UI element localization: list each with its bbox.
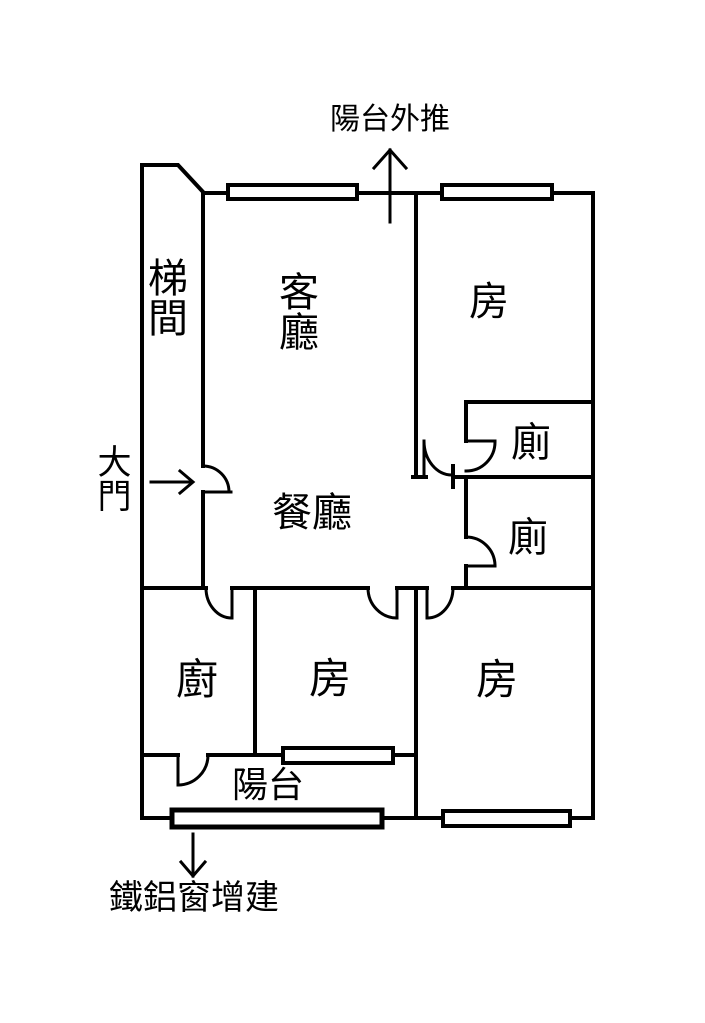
main-entrance-door [203,466,231,492]
room-label-living: 客廳 [276,273,322,353]
balcony-pushout-arrow [374,150,406,222]
room-label-dining: 餐廳 [272,493,352,533]
window-balcony-iron [172,810,382,827]
bedroom-right-door [427,588,453,618]
window-living-top [228,185,357,199]
window-addition-arrow [181,834,205,876]
bedroom-mid-door [368,588,397,618]
balcony-pushout-label: 陽台外推 [330,105,450,135]
kitchen-door [206,588,232,618]
balcony-door [178,755,208,785]
bedroom-top-door-arc [424,441,452,475]
kitchen-door-arc [206,588,232,618]
window-bedroom-mid [283,748,393,763]
window-bedroom-right [443,811,570,826]
toilet-upper-door-arc [466,442,495,471]
entrance-label: 大門 [94,444,128,512]
balcony-door-arc [178,755,208,785]
room-label-kitchen: 廚 [176,659,218,701]
room-label-stairwell: 梯間 [144,257,184,337]
main-entrance-door-arc [203,466,229,492]
bedroom-mid-door-arc [368,588,397,618]
bedroom-right-door-arc [427,588,453,618]
window-bedroom-top [442,185,552,199]
toilet-lower-door [466,537,495,566]
bedroom-top-door [424,441,452,477]
windows-group [172,185,570,827]
room-label-bedroom-mid: 房 [309,658,351,700]
room-label-toilet-lower: 廁 [508,518,548,558]
room-label-bedroom-right: 房 [476,659,518,701]
entrance-arrow [151,471,193,493]
toilet-lower-door-arc [466,537,495,565]
toilet-upper-door [466,441,495,471]
room-label-bedroom-top: 房 [469,282,509,322]
room-label-balcony: 陽台 [232,768,304,804]
room-label-toilet-upper: 廁 [511,423,551,463]
floorplan-canvas: 陽台外推 梯間 客廳 房 大門 餐廳 廁 廁 廚 房 房 陽台 鐵鋁窗增建 [0,0,705,1023]
bedroom-divider-upper-wall [413,193,426,477]
window-addition-label: 鐵鋁窗增建 [109,881,279,915]
